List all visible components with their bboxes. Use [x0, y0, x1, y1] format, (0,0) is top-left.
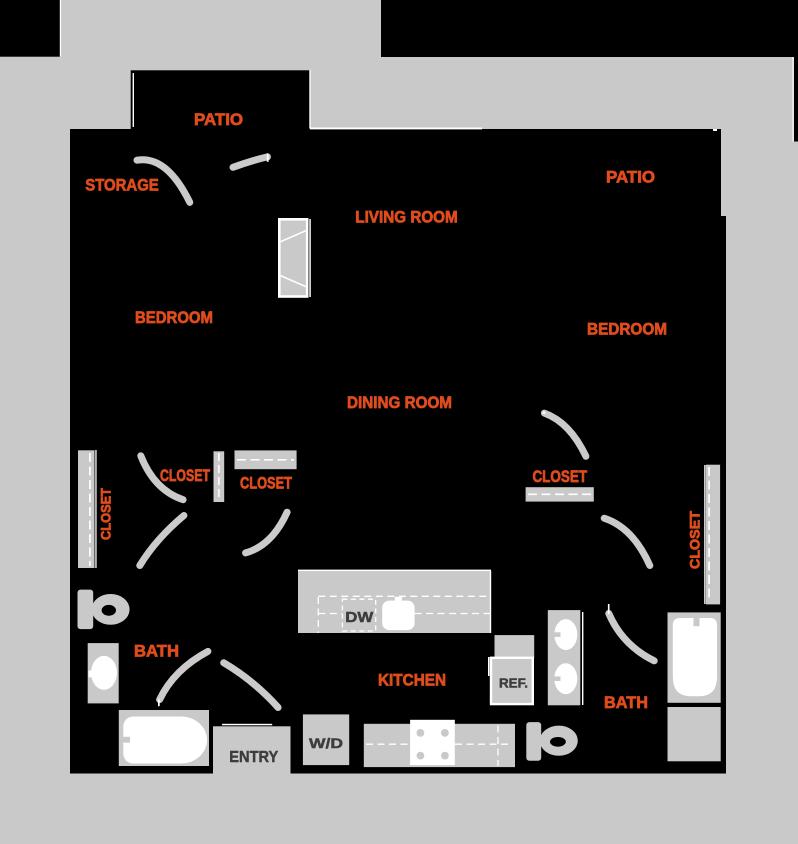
svg-text:ENTRY: ENTRY: [229, 749, 278, 766]
svg-text:LIVING ROOM: LIVING ROOM: [355, 208, 458, 227]
svg-text:BEDROOM: BEDROOM: [587, 320, 667, 339]
svg-text:CLOSET: CLOSET: [532, 467, 587, 486]
svg-text:REF.: REF.: [499, 676, 528, 691]
svg-text:DW: DW: [345, 609, 374, 626]
svg-text:BATH: BATH: [604, 693, 648, 712]
svg-text:CLOSET: CLOSET: [687, 511, 703, 569]
svg-text:STORAGE: STORAGE: [85, 176, 159, 195]
svg-text:KITCHEN: KITCHEN: [378, 671, 446, 690]
svg-text:PATIO: PATIO: [606, 168, 655, 187]
svg-text:BATH: BATH: [134, 642, 179, 661]
svg-text:BEDROOM: BEDROOM: [135, 308, 213, 327]
svg-text:DINING ROOM: DINING ROOM: [347, 393, 452, 412]
svg-text:W/D: W/D: [309, 735, 343, 751]
svg-text:PATIO: PATIO: [194, 110, 243, 129]
svg-text:CLOSET: CLOSET: [240, 474, 292, 493]
svg-text:CLOSET: CLOSET: [160, 466, 210, 485]
svg-text:CLOSET: CLOSET: [98, 488, 114, 540]
